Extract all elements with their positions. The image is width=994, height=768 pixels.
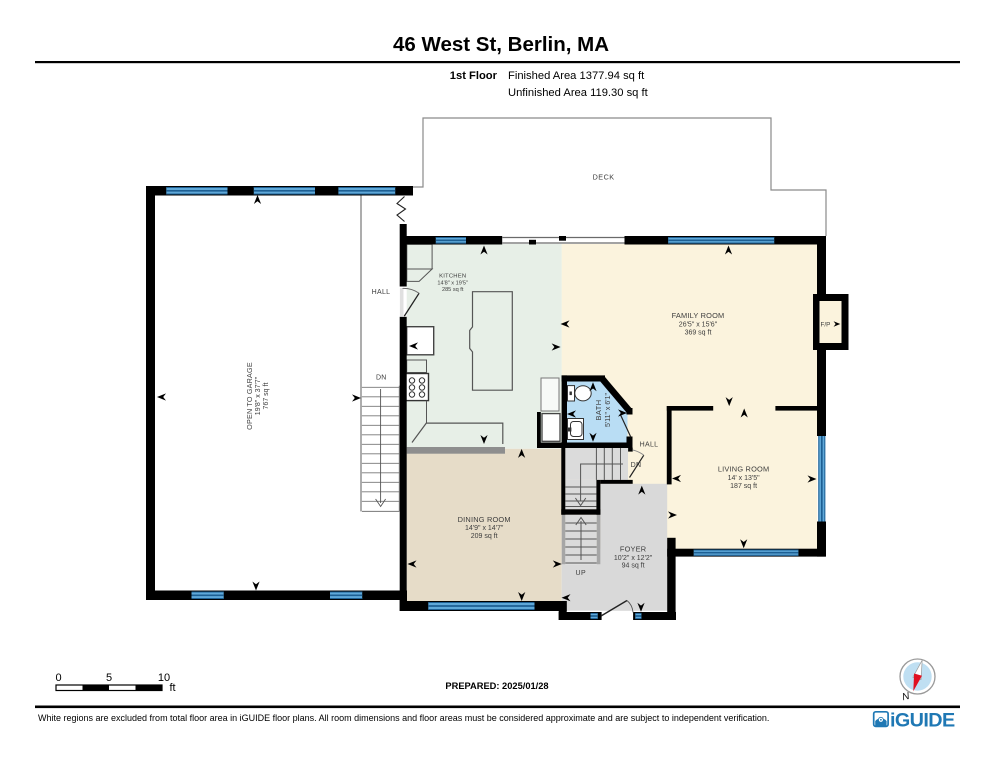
svg-text:F/P: F/P [821,322,831,329]
svg-text:5'11" x 6'1": 5'11" x 6'1" [605,392,612,426]
svg-text:HALL: HALL [372,289,391,296]
svg-text:26'5" x 15'6": 26'5" x 15'6" [679,321,718,328]
svg-text:285 sq ft: 285 sq ft [442,287,464,293]
svg-text:46 West St, Berlin, MA: 46 West St, Berlin, MA [393,33,609,56]
svg-text:DINING ROOM: DINING ROOM [458,515,511,524]
svg-text:Finished Area 1377.94 sq ft: Finished Area 1377.94 sq ft [508,70,645,82]
svg-text:14' x 13'5": 14' x 13'5" [728,475,761,482]
svg-text:767 sq ft: 767 sq ft [263,383,270,410]
svg-text:UP: UP [576,570,587,577]
svg-text:14'9" x 14'7": 14'9" x 14'7" [465,525,504,532]
svg-text:209 sq ft: 209 sq ft [471,533,498,540]
svg-text:LIVING ROOM: LIVING ROOM [718,465,769,474]
svg-text:BATH: BATH [594,399,603,420]
svg-text:19'8" x 37'7": 19'8" x 37'7" [255,376,262,415]
svg-text:White regions are excluded fro: White regions are excluded from total fl… [38,713,769,723]
svg-text:369 sq ft: 369 sq ft [685,329,712,336]
svg-text:iGUIDE: iGUIDE [890,710,955,732]
svg-text:94 sq ft: 94 sq ft [622,563,645,570]
svg-text:HALL: HALL [640,442,659,449]
svg-text:DECK: DECK [593,172,615,181]
svg-text:14'8" x 19'5": 14'8" x 19'5" [437,281,468,287]
svg-text:0: 0 [55,672,61,684]
svg-text:FAMILY ROOM: FAMILY ROOM [672,311,725,320]
svg-text:Unfinished Area 119.30 sq ft: Unfinished Area 119.30 sq ft [508,87,649,99]
svg-text:5: 5 [106,672,112,684]
svg-text:187 sq ft: 187 sq ft [730,483,757,490]
svg-text:KITCHEN: KITCHEN [439,274,466,280]
svg-text:ft: ft [170,682,176,694]
svg-text:FOYER: FOYER [620,545,646,554]
svg-text:10: 10 [158,672,170,684]
svg-text:DN: DN [376,375,387,382]
svg-text:OPEN TO GARAGE: OPEN TO GARAGE [245,362,254,430]
svg-text:PREPARED: 2025/01/28: PREPARED: 2025/01/28 [445,681,548,691]
svg-text:1st Floor: 1st Floor [450,70,498,82]
svg-text:10'2" x 12'2": 10'2" x 12'2" [614,555,653,562]
